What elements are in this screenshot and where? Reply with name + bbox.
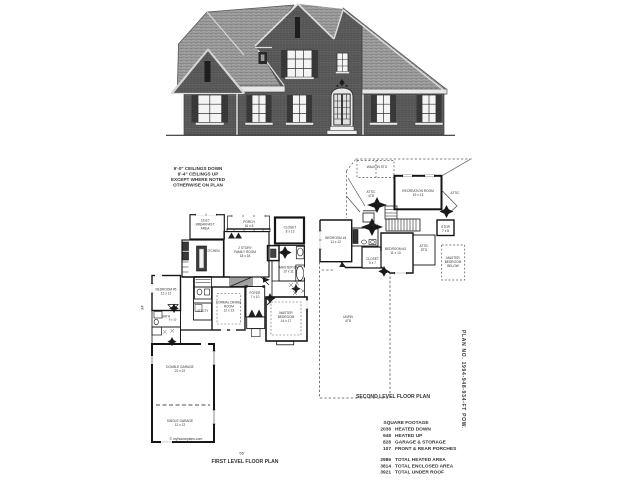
svg-text:ATTIC: ATTIC: [451, 191, 461, 195]
svg-text:19 x 13: 19 x 13: [413, 193, 424, 197]
svg-text:16 x 8: 16 x 8: [245, 224, 254, 228]
svg-text:STG: STG: [421, 248, 428, 252]
svg-text:18 x 18: 18 x 18: [240, 254, 251, 258]
svg-text:SQUARE FOOTAGE: SQUARE FOOTAGE: [383, 420, 429, 426]
svg-text:FRONT & REAR PORCHES: FRONT & REAR PORCHES: [395, 446, 457, 452]
svg-text:2986: 2986: [380, 457, 391, 463]
svg-text:2038: 2038: [380, 427, 391, 433]
svg-text:HALL: HALL: [371, 223, 379, 227]
svg-text:5 x 7: 5 x 7: [369, 261, 376, 265]
svg-text:PLAN NO. 1994-948-934-FT POW.: PLAN NO. 1994-948-934-FT POW.: [460, 330, 466, 429]
svg-text:HEATED DOWN: HEATED DOWN: [395, 427, 431, 433]
svg-text:SECOND LEVEL FLOOR PLAN: SECOND LEVEL FLOOR PLAN: [356, 394, 430, 400]
svg-text:12 x 13: 12 x 13: [224, 309, 235, 313]
svg-text:GARAGE & STORAGE: GARAGE & STORAGE: [395, 440, 447, 446]
svg-text:47'8: 47'8: [368, 194, 374, 198]
svg-text:FIRST LEVEL FLOOR PLAN: FIRST LEVEL FLOOR PLAN: [212, 459, 279, 465]
svg-text:EXCEPT WHERE NOTED: EXCEPT WHERE NOTED: [171, 177, 226, 182]
svg-text:3921: 3921: [380, 470, 391, 476]
svg-text:UTILITY: UTILITY: [197, 309, 210, 313]
svg-text:BELOW: BELOW: [447, 264, 459, 268]
svg-text:948: 948: [383, 433, 391, 439]
svg-text:9'-4" CEILINGS UP: 9'-4" CEILINGS UP: [178, 172, 219, 177]
svg-text:10 x 11: 10 x 11: [283, 270, 293, 274]
svg-text:3814: 3814: [380, 463, 391, 469]
svg-text:9'-0" CEILINGS DOWN: 9'-0" CEILINGS DOWN: [174, 166, 223, 171]
svg-text:8 x 13: 8 x 13: [286, 230, 295, 234]
svg-text:OTHERWISE ON PLAN: OTHERWISE ON PLAN: [173, 183, 223, 188]
svg-text:TOTAL UNDER ROOF: TOTAL UNDER ROOF: [395, 470, 444, 476]
svg-text:© myhouseplans.com: © myhouseplans.com: [170, 437, 203, 441]
svg-text:34': 34': [140, 305, 145, 310]
svg-text:14 x 17: 14 x 17: [281, 319, 292, 323]
svg-text:9 x 10: 9 x 10: [169, 318, 177, 322]
svg-text:KITCHEN: KITCHEN: [206, 249, 221, 253]
svg-text:11 x 12: 11 x 12: [331, 240, 341, 244]
svg-text:TOTAL ENCLOSED AREA: TOTAL ENCLOSED AREA: [395, 463, 454, 469]
svg-text:828: 828: [383, 440, 391, 446]
svg-text:21 x 22: 21 x 22: [175, 369, 186, 373]
svg-text:12 x 12: 12 x 12: [161, 292, 172, 296]
svg-text:47'8: 47'8: [345, 319, 351, 323]
svg-text:107: 107: [383, 446, 391, 452]
svg-text:11 x 13: 11 x 13: [390, 251, 400, 255]
svg-text:56': 56': [239, 451, 244, 456]
svg-text:12 x 12: 12 x 12: [175, 423, 186, 427]
svg-text:TOTAL HEATED AREA: TOTAL HEATED AREA: [395, 457, 446, 463]
svg-text:HEATED UP: HEATED UP: [395, 433, 423, 439]
svg-text:7 x 8: 7 x 8: [442, 229, 449, 233]
svg-text:7 x 10: 7 x 10: [251, 295, 260, 299]
svg-text:WALK-IN STG: WALK-IN STG: [367, 165, 388, 169]
svg-text:AREA: AREA: [201, 227, 211, 231]
